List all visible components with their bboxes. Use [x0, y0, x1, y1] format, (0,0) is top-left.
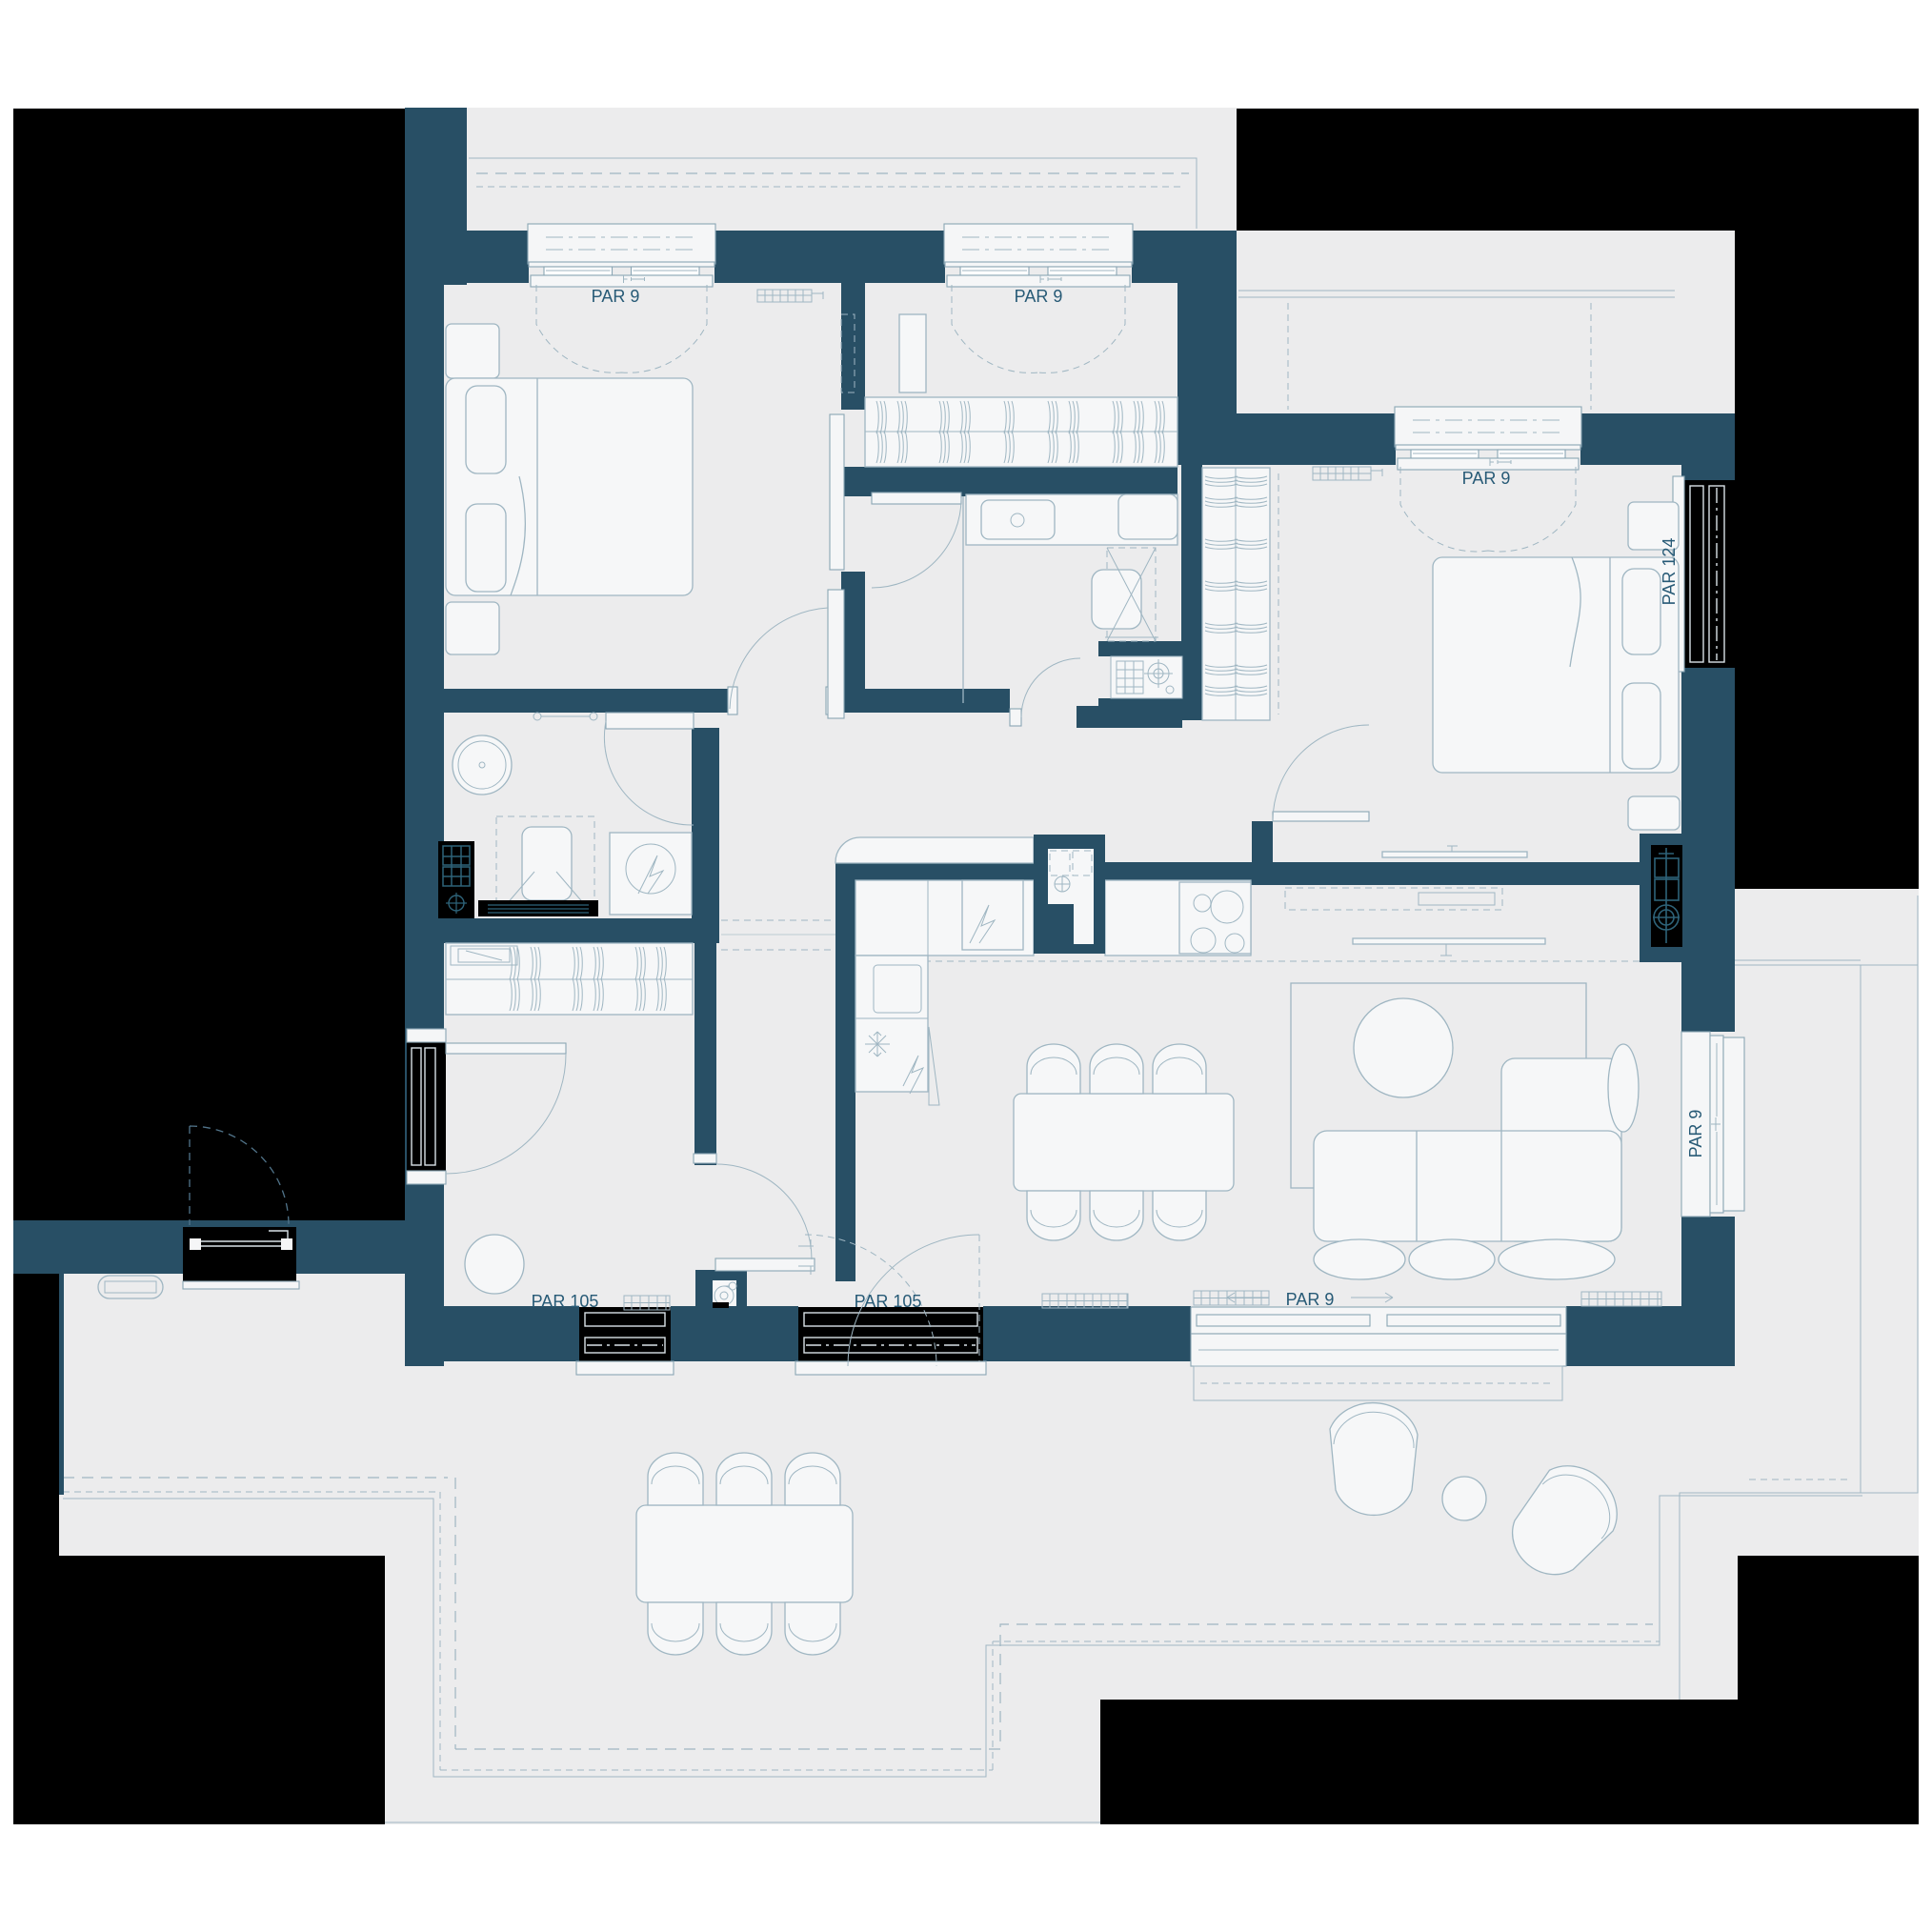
svg-text:PAR 105: PAR 105: [532, 1292, 599, 1311]
svg-text:PAR 9: PAR 9: [592, 287, 640, 306]
svg-text:PAR 105: PAR 105: [855, 1292, 922, 1311]
svg-text:PAR 9: PAR 9: [1686, 1110, 1705, 1158]
svg-text:PAR 124: PAR 124: [1660, 538, 1679, 606]
svg-text:PAR 9: PAR 9: [1462, 469, 1511, 488]
svg-text:PAR 9: PAR 9: [1286, 1290, 1335, 1309]
svg-text:PAR 9: PAR 9: [1015, 287, 1063, 306]
